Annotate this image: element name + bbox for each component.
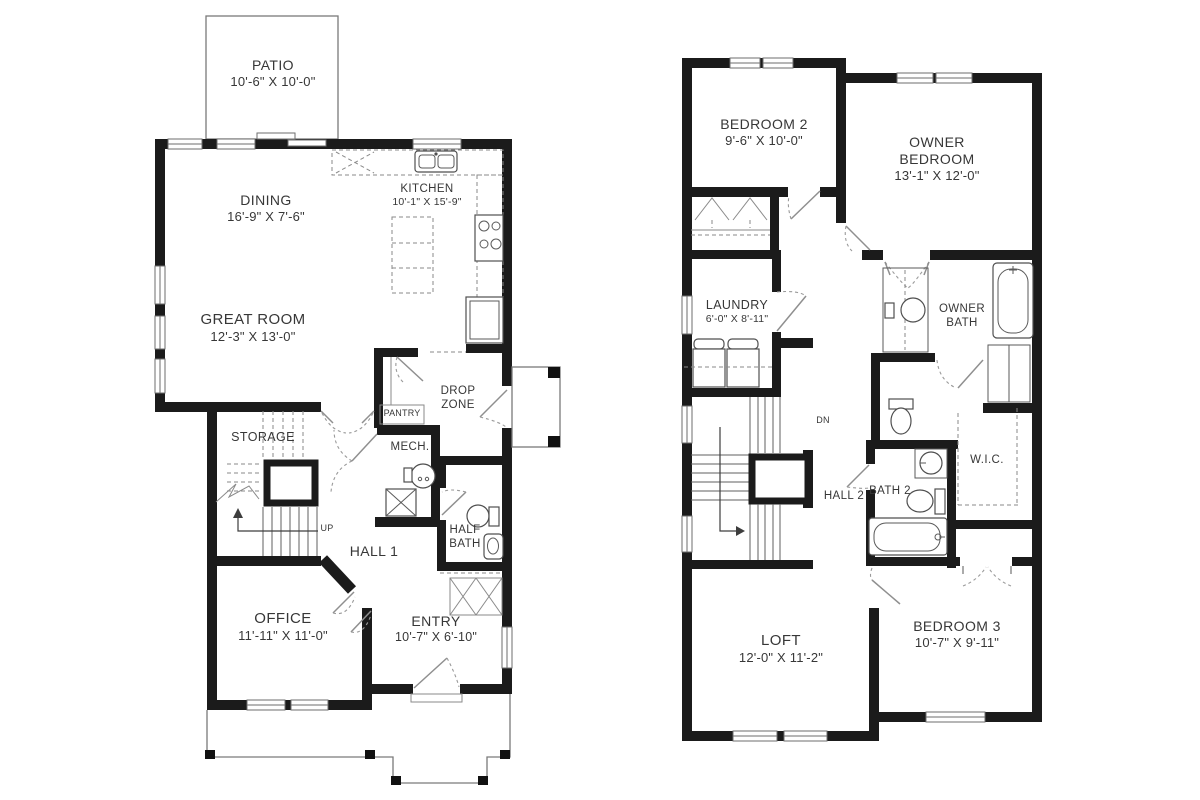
owner-sink-icon <box>901 298 925 322</box>
bath2-toilet-icon <box>907 489 945 514</box>
office-label: OFFICE 11'-11" X 11'-0" <box>238 610 328 644</box>
wic-label: W.I.C. <box>970 453 1004 467</box>
pantry-label: PANTRY <box>384 408 421 419</box>
bedroom2-closet <box>691 198 770 235</box>
entry-closet <box>440 573 502 615</box>
owner-bedroom-label: OWNER BEDROOM 13'-1" X 12'-0" <box>882 134 992 184</box>
side-stoop <box>512 367 560 447</box>
room-name: BEDROOM 3 <box>913 618 1001 635</box>
floorplan-canvas: PATIO 10'-6" X 10'-0" DINING 16'-9" X 7'… <box>0 0 1200 800</box>
room-name: OWNER BATH <box>930 302 994 330</box>
room-name: OWNER BEDROOM <box>882 134 992 168</box>
furnace-icon <box>386 489 416 516</box>
great-room-label: GREAT ROOM 12'-3" X 13'-0" <box>200 311 305 345</box>
room-name: W.I.C. <box>970 453 1004 467</box>
room-dims: 11'-11" X 11'-0" <box>238 628 328 644</box>
room-dims: 6'-0" X 8'-11" <box>706 313 769 326</box>
room-name: STORAGE <box>231 430 295 445</box>
room-name: LOFT <box>739 632 823 650</box>
great-room-opening <box>321 411 374 433</box>
up-arrow-icon <box>233 508 318 531</box>
entry-label: ENTRY 10'-7" X 6'-10" <box>395 613 477 645</box>
room-name: KITCHEN <box>392 182 461 196</box>
linen-closet <box>988 345 1030 402</box>
room-dims: 12'-3" X 13'-0" <box>200 329 305 345</box>
bedroom3-label: BEDROOM 3 10'-7" X 9'-11" <box>913 618 1001 651</box>
wh-valve-icon <box>404 468 412 482</box>
water-heater-icon <box>411 464 435 488</box>
hall2-label: HALL 2 <box>823 489 865 503</box>
dn-label: DN <box>816 415 829 426</box>
half-bath-label: HALF BATH <box>441 523 489 551</box>
room-dims: 13'-1" X 12'-0" <box>882 168 992 184</box>
room-name: HALL 1 <box>350 543 399 560</box>
laundry-label: LAUNDRY 6'-0" X 8'-11" <box>706 298 769 326</box>
stove-icon <box>475 215 503 261</box>
kitchen-sink <box>415 151 457 172</box>
loft-label: LOFT 12'-0" X 11'-2" <box>739 632 823 666</box>
bedroom3-door <box>871 568 901 604</box>
bedroom3-wic-doors <box>963 566 1011 586</box>
floor1-plan <box>155 16 560 785</box>
owner-toilet-icon <box>889 399 913 434</box>
stair-direction: DN <box>816 415 829 426</box>
bedroom2-door <box>788 191 820 219</box>
room-name: ENTRY <box>395 613 477 630</box>
room-name: LAUNDRY <box>706 298 769 313</box>
bath2-sink-icon <box>915 449 947 478</box>
owner-bath-door <box>885 262 929 288</box>
patio-label: PATIO 10'-6" X 10'-0" <box>230 57 315 90</box>
mech-label: MECH. <box>390 440 429 454</box>
bedroom2-label: BEDROOM 2 9'-6" X 10'-0" <box>720 116 808 149</box>
room-dims: 9'-6" X 10'-0" <box>720 133 808 149</box>
room-name: PATIO <box>230 57 315 74</box>
room-dims: 10'-1" X 15'-9" <box>392 196 461 209</box>
room-name: BATH 2 <box>868 484 912 498</box>
owner-bedroom-door <box>845 226 870 251</box>
room-name: OFFICE <box>238 610 328 628</box>
room-name: DROP ZONE <box>433 384 483 412</box>
room-name: PANTRY <box>384 408 421 419</box>
refrigerator-icon <box>466 297 503 343</box>
room-dims: 16'-9" X 7'-6" <box>227 209 305 225</box>
room-dims: 10'-7" X 6'-10" <box>395 630 477 645</box>
bath2-tub-icon <box>869 518 947 555</box>
owner-tub-icon <box>993 263 1033 338</box>
room-name: HALL 2 <box>823 489 865 503</box>
room-name: MECH. <box>390 440 429 454</box>
wic-door <box>937 360 983 388</box>
drop-zone-label: DROP ZONE <box>433 384 483 412</box>
room-dims: 12'-0" X 11'-2" <box>739 650 823 666</box>
kitchen-island <box>392 217 433 293</box>
floor2-stairs <box>691 397 808 560</box>
up-label: UP <box>321 523 334 534</box>
room-name: DINING <box>227 192 305 209</box>
storage-label: STORAGE <box>231 430 295 445</box>
bath2-label: BATH 2 <box>868 484 912 498</box>
hall1-label: HALL 1 <box>350 543 399 560</box>
room-name: HALF BATH <box>441 523 489 551</box>
room-dims: 10'-6" X 10'-0" <box>230 74 315 90</box>
washer-icon <box>693 339 725 387</box>
stair-direction: UP <box>321 523 334 534</box>
room-name: BEDROOM 2 <box>720 116 808 133</box>
room-dims: 10'-7" X 9'-11" <box>913 635 1001 651</box>
dining-label: DINING 16'-9" X 7'-6" <box>227 192 305 225</box>
dryer-icon <box>727 339 759 387</box>
kitchen-label: KITCHEN 10'-1" X 15'-9" <box>392 182 461 209</box>
owner-bath-label: OWNER BATH <box>930 302 994 330</box>
room-name: GREAT ROOM <box>200 311 305 329</box>
floorplan-drawing <box>0 0 1200 800</box>
